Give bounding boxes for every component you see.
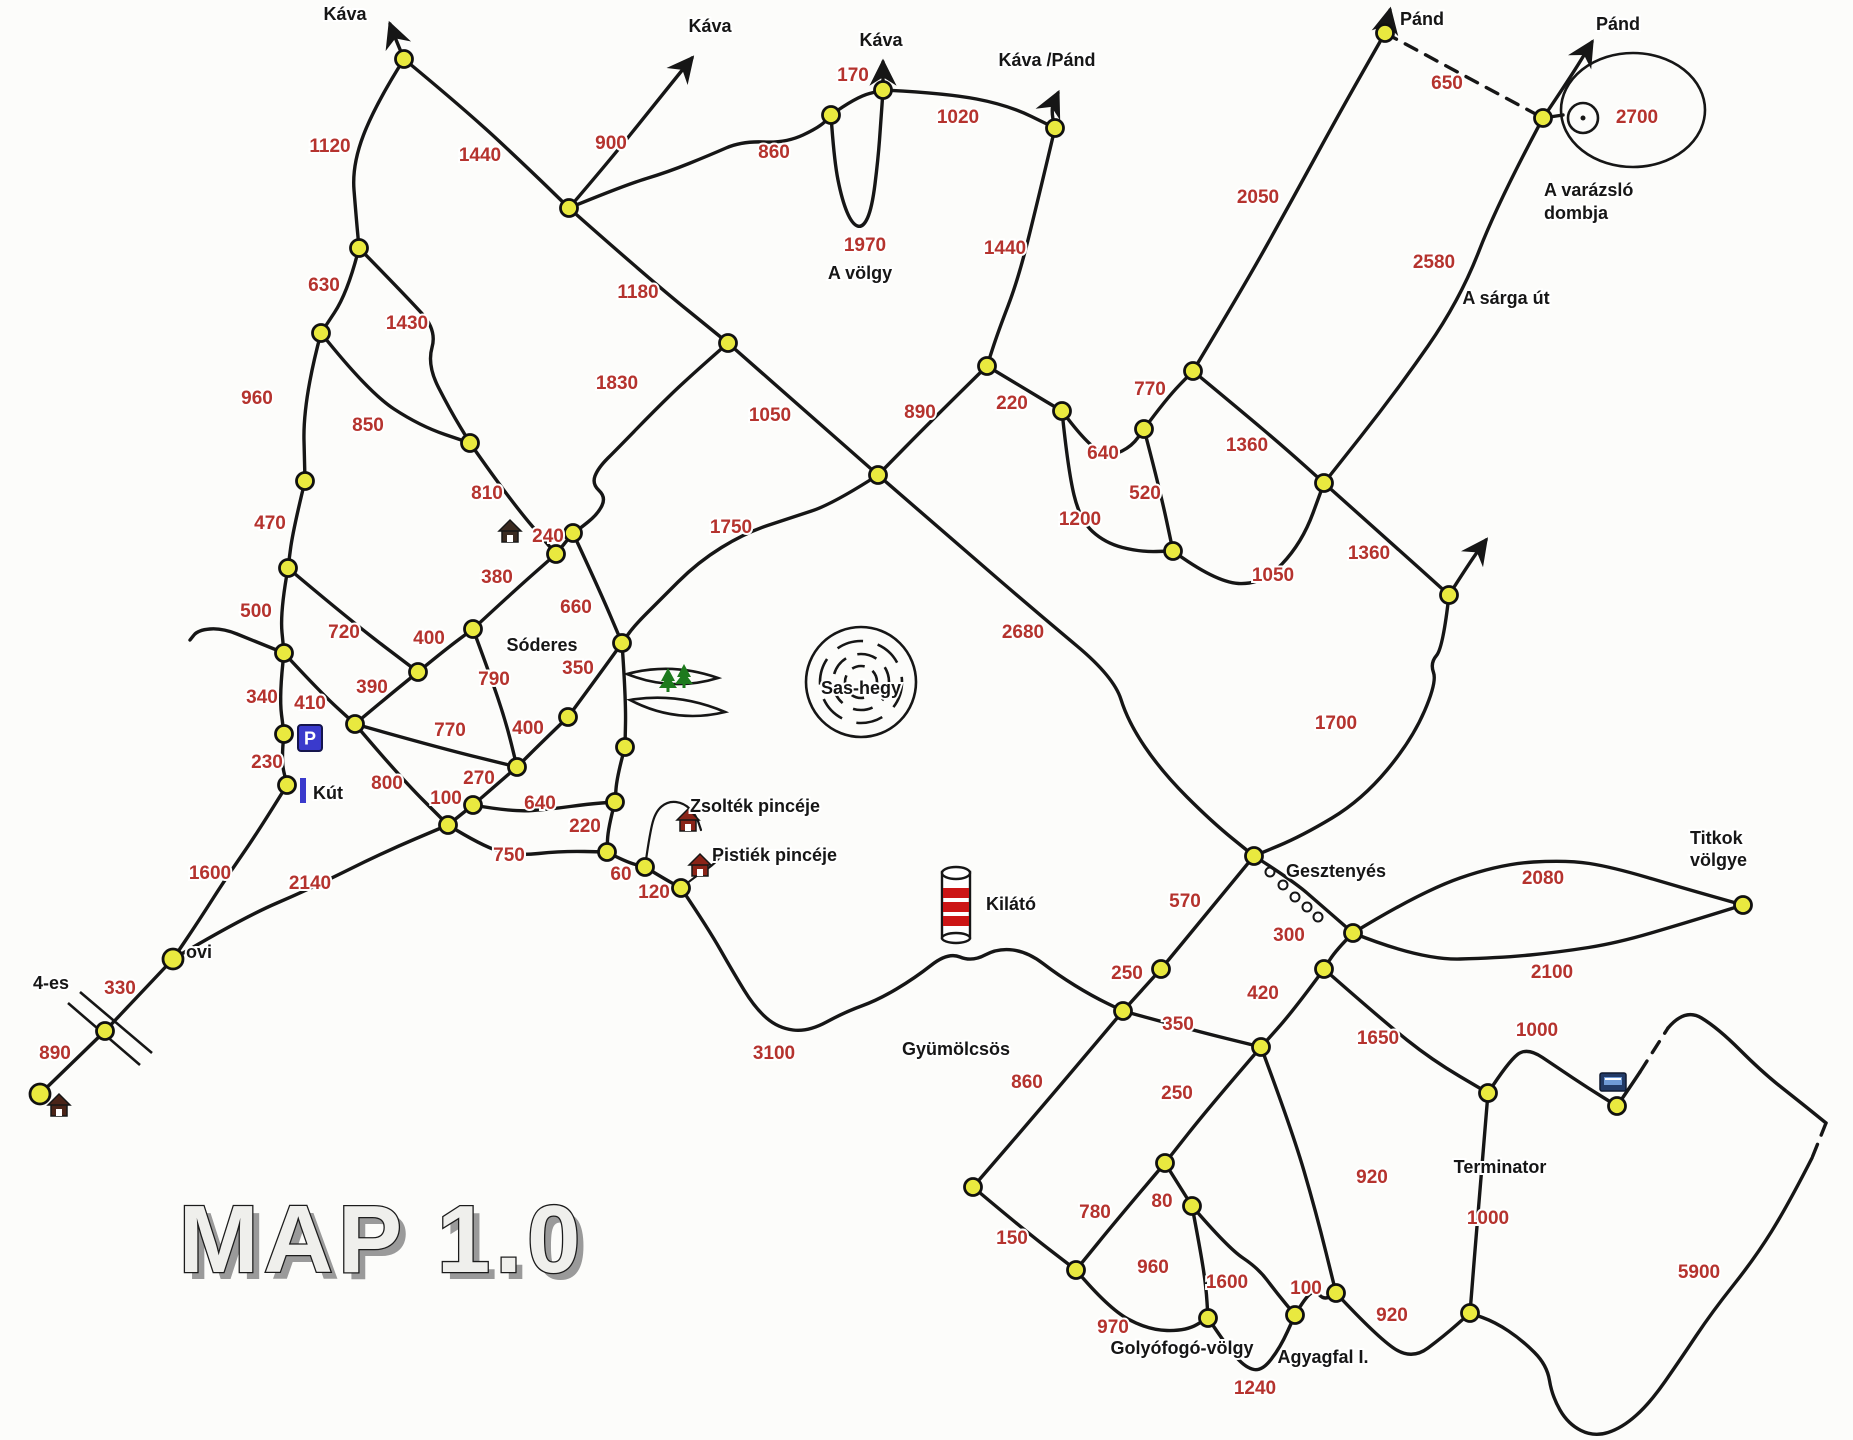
place-label: Agyagfal I.: [1277, 1347, 1368, 1367]
map-node[interactable]: [637, 859, 654, 876]
map-node[interactable]: [979, 358, 996, 375]
trail-path: [359, 248, 470, 443]
distance-label: 640: [1087, 443, 1119, 464]
house-door: [697, 869, 703, 876]
distance-label: 250: [1161, 1083, 1193, 1104]
distance-label: 640: [524, 793, 556, 814]
house-door: [56, 1109, 62, 1116]
trail-path: [282, 568, 288, 653]
distance-label: 400: [413, 628, 445, 649]
house-door: [507, 535, 513, 542]
map-node[interactable]: [607, 794, 624, 811]
place-label: Terminator: [1454, 1157, 1547, 1177]
distance-label: 350: [562, 658, 594, 679]
map-node[interactable]: [1068, 1262, 1085, 1279]
distance-label: 2140: [289, 873, 331, 894]
place-label: Pistiék pincéje: [712, 845, 837, 865]
tower-band: [943, 916, 969, 926]
map-node[interactable]: [1115, 1003, 1132, 1020]
distance-label: 1600: [189, 863, 231, 884]
map-node[interactable]: [1165, 543, 1182, 560]
distance-label: 2080: [1522, 868, 1564, 889]
map-node[interactable]: [548, 546, 565, 563]
distance-label: 800: [371, 773, 403, 794]
computer-screen-line: [1605, 1078, 1621, 1080]
map-node[interactable]: [1200, 1310, 1217, 1327]
trail-path: [1543, 42, 1592, 118]
distance-label: 960: [1137, 1257, 1169, 1278]
map-node[interactable]: [1153, 961, 1170, 978]
distance-label: 960: [241, 388, 273, 409]
distance-label: 810: [471, 483, 503, 504]
map-node[interactable]: [1316, 475, 1333, 492]
trail-path: [1470, 1093, 1488, 1313]
distance-label: 270: [463, 768, 495, 789]
trail-path: [1668, 1015, 1826, 1123]
trail-path: [1261, 969, 1324, 1047]
distance-label: 920: [1356, 1167, 1388, 1188]
distance-label: 1700: [1315, 713, 1357, 734]
map-node[interactable]: [1480, 1085, 1497, 1102]
house-icon: [48, 1094, 70, 1116]
trail-path: [281, 653, 284, 734]
distance-label: 1050: [749, 405, 791, 426]
place-label: Zsolték pincéje: [690, 796, 820, 816]
tower-top: [942, 867, 970, 879]
map-node[interactable]: [673, 880, 690, 897]
trail-path: [1385, 33, 1543, 118]
map-node[interactable]: [97, 1023, 114, 1040]
distance-label: 330: [104, 978, 136, 999]
map-node[interactable]: [1735, 897, 1752, 914]
map-node[interactable]: [1287, 1307, 1304, 1324]
distance-label: 2680: [1002, 622, 1044, 643]
map-node[interactable]: [465, 797, 482, 814]
trail-path: [1193, 371, 1324, 483]
distance-label: 2580: [1413, 252, 1455, 273]
house-roof: [499, 520, 521, 531]
map-node[interactable]: [297, 473, 314, 490]
parking-letter: P: [304, 729, 316, 749]
map-node[interactable]: [1377, 25, 1394, 42]
dotted-trail-icon: [1279, 881, 1288, 890]
distance-label: 1600: [1206, 1272, 1248, 1293]
distance-label: 720: [328, 622, 360, 643]
distance-label: 230: [251, 752, 283, 773]
map-node[interactable]: [1253, 1039, 1270, 1056]
distance-label: 1970: [844, 235, 886, 256]
trail-path: [1324, 483, 1449, 595]
place-label: ovi: [186, 942, 212, 962]
place-label: Kilátó: [986, 894, 1036, 914]
map-canvas: PMAP 1.0MAP 1.01120144090086017010201970…: [0, 0, 1853, 1440]
trail-path: [573, 343, 728, 533]
map-node[interactable]: [1441, 587, 1458, 604]
distance-label: 1200: [1059, 509, 1101, 530]
distance-label: 770: [434, 720, 466, 741]
distance-label: 1360: [1226, 435, 1268, 456]
place-label: Káva /Pánd: [998, 50, 1095, 70]
place-label: völgye: [1690, 850, 1747, 870]
trail-path: [1449, 540, 1486, 595]
trail-path: [573, 533, 622, 643]
trail-path: [1488, 1051, 1617, 1106]
trail-path: [354, 59, 404, 248]
map-node[interactable]: [565, 525, 582, 542]
distance-label: 420: [1247, 983, 1279, 1004]
map-node[interactable]: [1185, 363, 1202, 380]
distance-label: 630: [308, 275, 340, 296]
parking-icon[interactable]: P: [298, 725, 322, 751]
trail-path: [569, 208, 728, 343]
map-node[interactable]: [30, 1084, 50, 1104]
map-node[interactable]: [599, 844, 616, 861]
map-node[interactable]: [1328, 1285, 1345, 1302]
map-node[interactable]: [1462, 1305, 1479, 1322]
distance-label: 350: [1162, 1014, 1194, 1035]
trail-path: [1324, 969, 1488, 1093]
map-node[interactable]: [276, 645, 293, 662]
distance-label: 1430: [386, 313, 428, 334]
distance-label: 220: [996, 393, 1028, 414]
map-node[interactable]: [1316, 961, 1333, 978]
house-icon: [499, 520, 521, 542]
distance-label: 750: [493, 845, 525, 866]
place-label: A sárga út: [1462, 288, 1549, 308]
distance-label: 170: [837, 65, 869, 86]
distance-label: 240: [532, 526, 564, 547]
map-node[interactable]: [313, 325, 330, 342]
map-node[interactable]: [462, 435, 479, 452]
trail-path: [1353, 905, 1743, 959]
distance-label: 1360: [1348, 543, 1390, 564]
distance-label: 340: [246, 687, 278, 708]
trail-path: [681, 888, 1123, 1030]
map-node[interactable]: [1184, 1198, 1201, 1215]
place-label: Gyümölcsös: [902, 1039, 1010, 1059]
distance-label: 220: [569, 816, 601, 837]
distance-label: 5900: [1678, 1262, 1720, 1283]
house-roof: [48, 1094, 70, 1105]
distance-label: 1240: [1234, 1378, 1276, 1399]
tower-band: [943, 888, 969, 898]
map-title: MAP 1.0: [179, 1186, 586, 1293]
map-node[interactable]: [280, 560, 297, 577]
distance-label: 1120: [309, 136, 350, 157]
map-node[interactable]: [561, 200, 578, 217]
dotted-trail-icon: [1291, 893, 1300, 902]
trail-path: [973, 1011, 1123, 1187]
place-label: Káva: [323, 4, 367, 24]
trail-path: [1261, 1047, 1336, 1293]
dotted-trail-icon: [1314, 913, 1323, 922]
distance-label: 100: [430, 788, 462, 809]
distance-label: 920: [1376, 1305, 1408, 1326]
trail-path: [473, 554, 556, 629]
place-label: Golyófogó-völgy: [1111, 1338, 1254, 1358]
map-node[interactable]: [1246, 848, 1263, 865]
distance-label: 1440: [459, 145, 501, 166]
map-node[interactable]: [560, 709, 577, 726]
field-outline-icon: [630, 698, 725, 716]
place-label: Káva: [859, 30, 903, 50]
map-node[interactable]: [440, 817, 457, 834]
distance-label: 770: [1134, 379, 1166, 400]
distance-label: 80: [1151, 1191, 1172, 1212]
map-node[interactable]: [1535, 110, 1552, 127]
place-label: Pánd: [1400, 9, 1444, 29]
distance-label: 120: [638, 882, 670, 903]
house-roof: [689, 854, 711, 865]
map-node[interactable]: [1054, 403, 1071, 420]
tower-band: [943, 902, 969, 912]
distance-label: 1650: [1357, 1028, 1399, 1049]
place-label: Kút: [313, 783, 343, 803]
place-label: dombja: [1544, 203, 1609, 223]
map-node[interactable]: [276, 726, 293, 743]
place-label: 4-es: [33, 973, 69, 993]
map-node[interactable]: [465, 621, 482, 638]
house-door: [685, 824, 691, 831]
lookout-tower-icon: [942, 867, 970, 943]
trail-path: [1173, 483, 1324, 584]
distance-label: 660: [560, 597, 592, 618]
map-node[interactable]: [163, 949, 183, 969]
trail-path: [622, 643, 626, 747]
distance-label: 250: [1111, 963, 1143, 984]
distance-label: 520: [1129, 483, 1161, 504]
distance-label: 1050: [1252, 565, 1294, 586]
distance-label: 860: [758, 142, 790, 163]
trail-path: [190, 629, 284, 653]
trail-path: [288, 568, 418, 672]
distance-label: 2050: [1237, 187, 1279, 208]
trail-path: [304, 333, 321, 481]
distance-label: 410: [294, 693, 326, 714]
distance-label: 970: [1097, 1317, 1129, 1338]
distance-label: 650: [1431, 73, 1463, 94]
map-node[interactable]: [279, 777, 296, 794]
tower-base: [942, 933, 970, 943]
place-label: A varázsló: [1544, 180, 1633, 200]
place-label: Sas-hegy: [821, 678, 901, 698]
distance-label: 860: [1011, 1072, 1043, 1093]
trail-path: [404, 59, 569, 208]
distance-label: 3100: [753, 1043, 795, 1064]
place-label: Káva: [688, 16, 732, 36]
map-node[interactable]: [1609, 1098, 1626, 1115]
computer-icon: [1600, 1073, 1626, 1091]
distance-label: 1440: [984, 238, 1026, 259]
map-node[interactable]: [965, 1179, 982, 1196]
map-node[interactable]: [1345, 925, 1362, 942]
map-node[interactable]: [870, 467, 887, 484]
varazslo-dot: [1581, 116, 1586, 121]
distance-label: 500: [240, 601, 272, 622]
distance-label: 570: [1169, 891, 1201, 912]
trail-map: PMAP 1.0MAP 1.01120144090086017010201970…: [0, 0, 1853, 1440]
distance-label: 890: [39, 1043, 71, 1064]
dotted-trail-icon: [1303, 903, 1312, 912]
distance-label: 150: [996, 1228, 1028, 1249]
distance-label: 1180: [617, 282, 658, 303]
distance-label: 780: [1079, 1202, 1111, 1223]
distance-label: 60: [610, 864, 631, 885]
distance-label: 390: [356, 677, 388, 698]
distance-label: 2700: [1616, 107, 1658, 128]
map-node[interactable]: [509, 759, 526, 776]
trail-path: [288, 481, 305, 568]
distance-label: 400: [512, 718, 544, 739]
map-node[interactable]: [720, 335, 737, 352]
trail-path: [1165, 1047, 1261, 1163]
trail-path: [1470, 1158, 1812, 1434]
map-node[interactable]: [1047, 120, 1064, 137]
map-node[interactable]: [347, 716, 364, 733]
distance-label: 890: [904, 402, 936, 423]
house-icon: [689, 854, 711, 876]
trail-path: [622, 475, 878, 643]
place-label: Gesztenyés: [1286, 861, 1386, 881]
distance-label: 2100: [1531, 962, 1573, 983]
place-label: A völgy: [828, 263, 892, 283]
map-node[interactable]: [875, 82, 892, 99]
place-label: Titkok: [1690, 828, 1744, 848]
place-label: Sóderes: [506, 635, 577, 655]
map-node[interactable]: [396, 51, 413, 68]
distance-label: 1830: [596, 373, 638, 394]
distance-label: 300: [1273, 925, 1305, 946]
distance-label: 1000: [1467, 1208, 1509, 1229]
well-icon: [300, 778, 306, 803]
distance-label: 470: [254, 513, 286, 534]
distance-label: 100: [1290, 1278, 1322, 1299]
distance-label: 1750: [710, 517, 752, 538]
tree-icon: [659, 668, 677, 692]
trail-path: [1076, 1270, 1208, 1331]
trail-path: [321, 333, 470, 443]
distance-label: 790: [478, 669, 510, 690]
map-node[interactable]: [614, 635, 631, 652]
trail-path: [1640, 1028, 1668, 1072]
map-node[interactable]: [617, 739, 634, 756]
map-node[interactable]: [1136, 421, 1153, 438]
distance-label: 1000: [1516, 1020, 1558, 1041]
map-node[interactable]: [410, 664, 427, 681]
trail-path: [1812, 1123, 1826, 1158]
distance-label: 380: [481, 567, 513, 588]
trail-path: [1193, 33, 1385, 371]
trail-path: [878, 475, 1254, 856]
distance-label: 900: [595, 133, 627, 154]
distance-label: 850: [352, 415, 384, 436]
map-node[interactable]: [823, 107, 840, 124]
trail-path: [1161, 856, 1254, 969]
distance-label: 1020: [937, 107, 979, 128]
map-node[interactable]: [351, 240, 368, 257]
map-node[interactable]: [1157, 1155, 1174, 1172]
place-label: Pánd: [1596, 14, 1640, 34]
